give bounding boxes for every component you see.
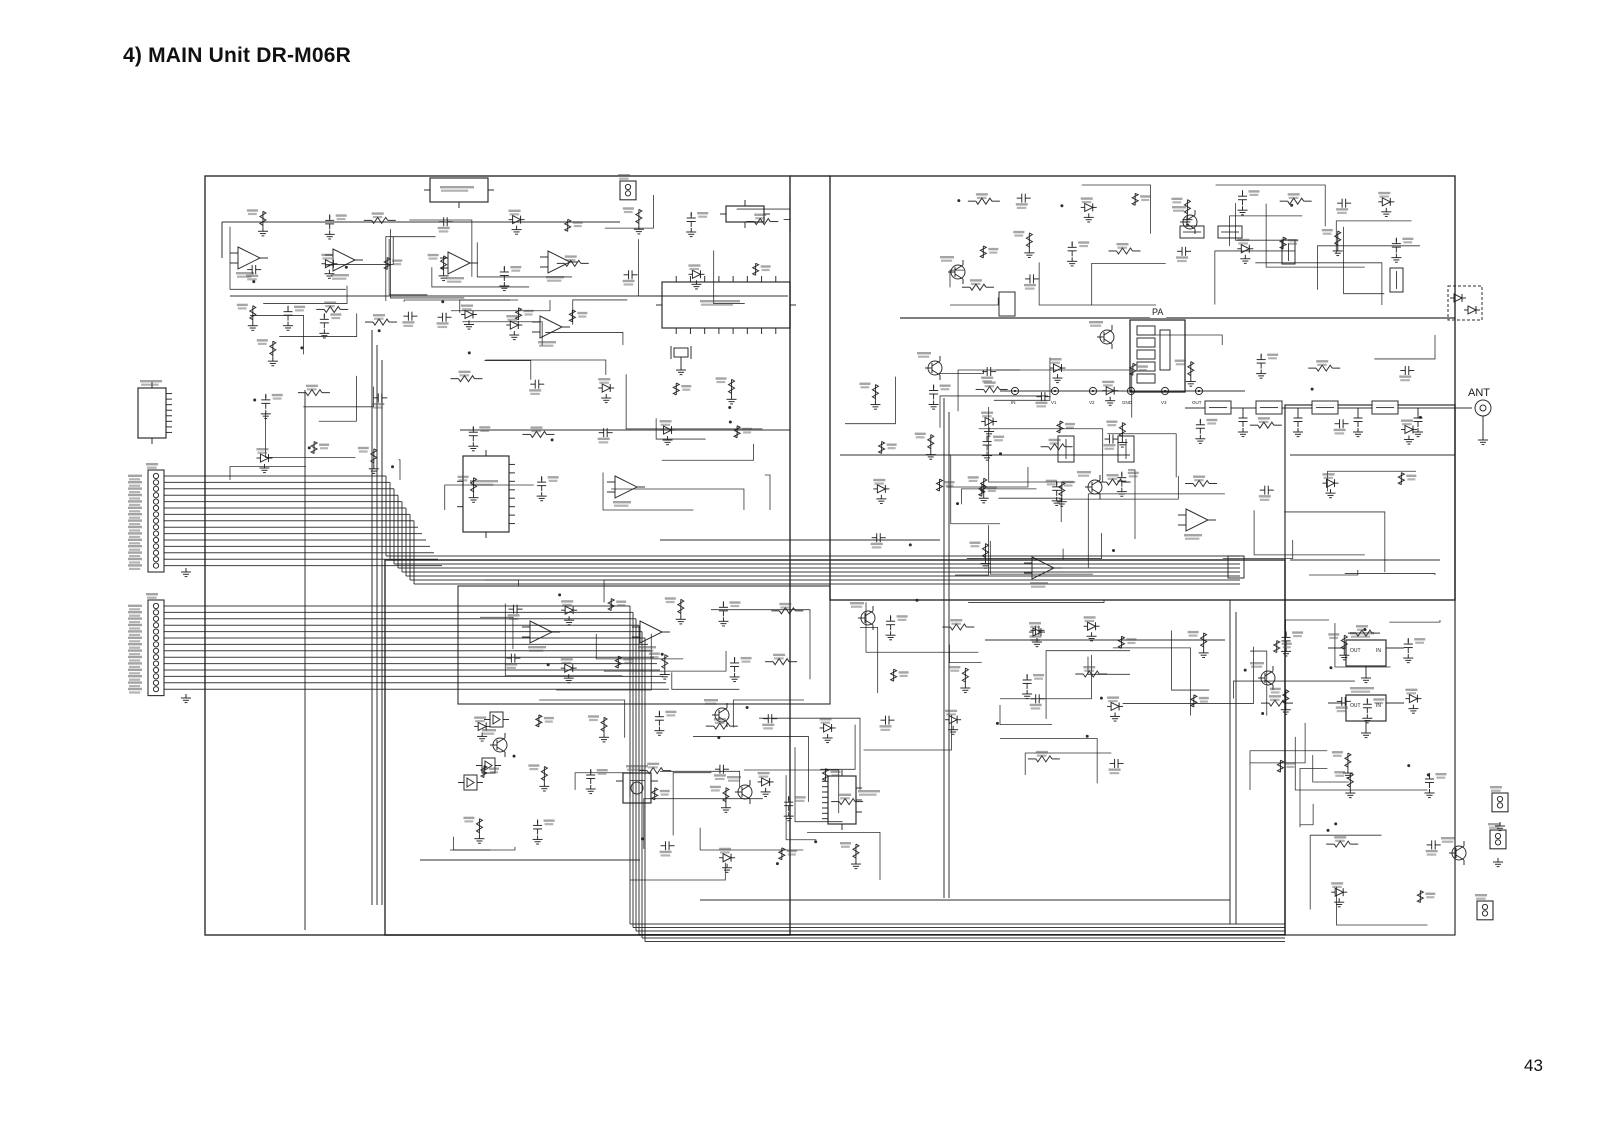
schematic-label-tp-v2: V2 bbox=[1089, 400, 1095, 405]
schematic-label-tp-gnd: GND bbox=[1122, 400, 1133, 405]
schematic-label-tp-v1: V1 bbox=[1051, 400, 1057, 405]
schematic-label-ant: ANT bbox=[1468, 387, 1490, 399]
schematic-label-pa: PA bbox=[1152, 307, 1163, 317]
schematic-label-reg1-in: IN bbox=[1376, 648, 1381, 654]
labels-layer: ANTPAOUTINOUTININV1V2GNDV3OUT bbox=[1011, 306, 1492, 709]
schematic-label-reg2-out: OUT bbox=[1350, 703, 1361, 709]
wires-layer bbox=[164, 176, 1483, 942]
schematic-label-tp-out: OUT bbox=[1192, 400, 1202, 405]
page-number: 43 bbox=[1524, 1056, 1543, 1076]
schematic-label-tp-in: IN bbox=[1011, 400, 1016, 405]
schematic-label-reg1-out: OUT bbox=[1350, 648, 1361, 654]
document-page: 4) MAIN Unit DR-M06R ANTPAOUTINOUTININV1… bbox=[0, 0, 1600, 1133]
schematic-label-tp-v3: V3 bbox=[1161, 400, 1167, 405]
schematic-label-reg2-in: IN bbox=[1376, 703, 1381, 709]
schematic-diagram: ANTPAOUTINOUTININV1V2GNDV3OUT bbox=[0, 0, 1600, 1133]
